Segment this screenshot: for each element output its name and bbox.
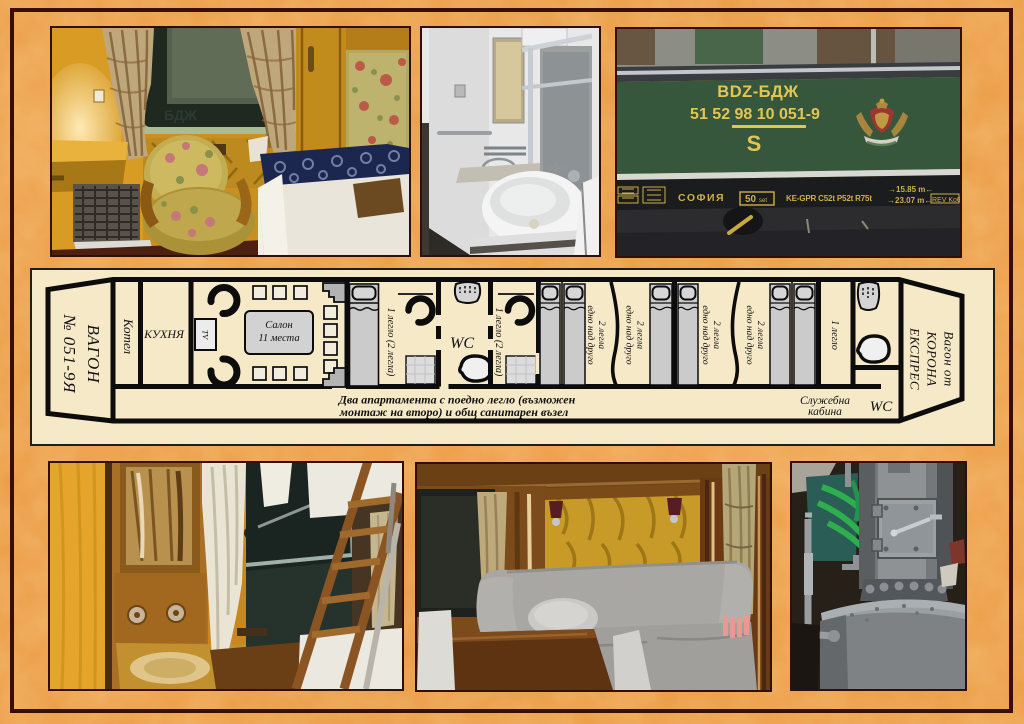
svg-text:кабина: кабина [808, 406, 842, 418]
svg-text:Салон: Салон [265, 320, 293, 331]
svg-text:WC: WC [450, 335, 474, 352]
svg-text:→15.85 m←: →15.85 m← [888, 185, 933, 194]
svg-text:S: S [747, 131, 762, 156]
svg-text:2 леглаедно над друго: 2 леглаедно над друго [585, 305, 606, 365]
svg-text:КУХНЯ: КУХНЯ [143, 327, 185, 341]
svg-text:→23.07 m←: →23.07 m← [887, 196, 932, 205]
svg-text:2 леглаедно над друго: 2 леглаедно над друго [744, 305, 765, 365]
svg-text:1 легло: 1 легло [829, 320, 840, 350]
svg-text:BDZ-БДЖ: BDZ-БДЖ [717, 83, 798, 101]
svg-text:2 леглаедно над друго: 2 леглаедно над друго [624, 305, 645, 365]
svg-text:Вагон отКОРОНАЕКСПРЕС: Вагон отКОРОНАЕКСПРЕС [908, 327, 957, 390]
svg-text:2 леглаедно над друго: 2 леглаедно над друго [700, 305, 721, 365]
svg-text:REV Ko610: REV Ko610 [932, 197, 960, 204]
svg-text:50: 50 [745, 194, 757, 205]
svg-text:KE-GPR C52t P52t R75t: KE-GPR C52t P52t R75t [786, 194, 872, 203]
svg-text:1 легло (2 легла): 1 легло (2 легла) [493, 308, 504, 377]
svg-text:51 52 98 10 051-9: 51 52 98 10 051-9 [690, 106, 820, 123]
svg-text:ВАГОН№ 051-9Я: ВАГОН№ 051-9Я [60, 313, 103, 393]
svg-text:БДЖ: БДЖ [164, 107, 197, 123]
svg-text:11 места: 11 места [258, 333, 299, 344]
svg-text:WC: WC [870, 399, 893, 415]
svg-text:TV: TV [201, 330, 210, 340]
svg-text:set: set [759, 198, 767, 204]
svg-text:монтаж на второ) и общ санитар: монтаж на второ) и общ санитарен възел [339, 405, 569, 419]
svg-text:СОФИЯ: СОФИЯ [678, 192, 725, 204]
svg-text:1 легло (2 легла): 1 легло (2 легла) [385, 308, 396, 377]
svg-text:Котел: Котел [121, 318, 136, 354]
